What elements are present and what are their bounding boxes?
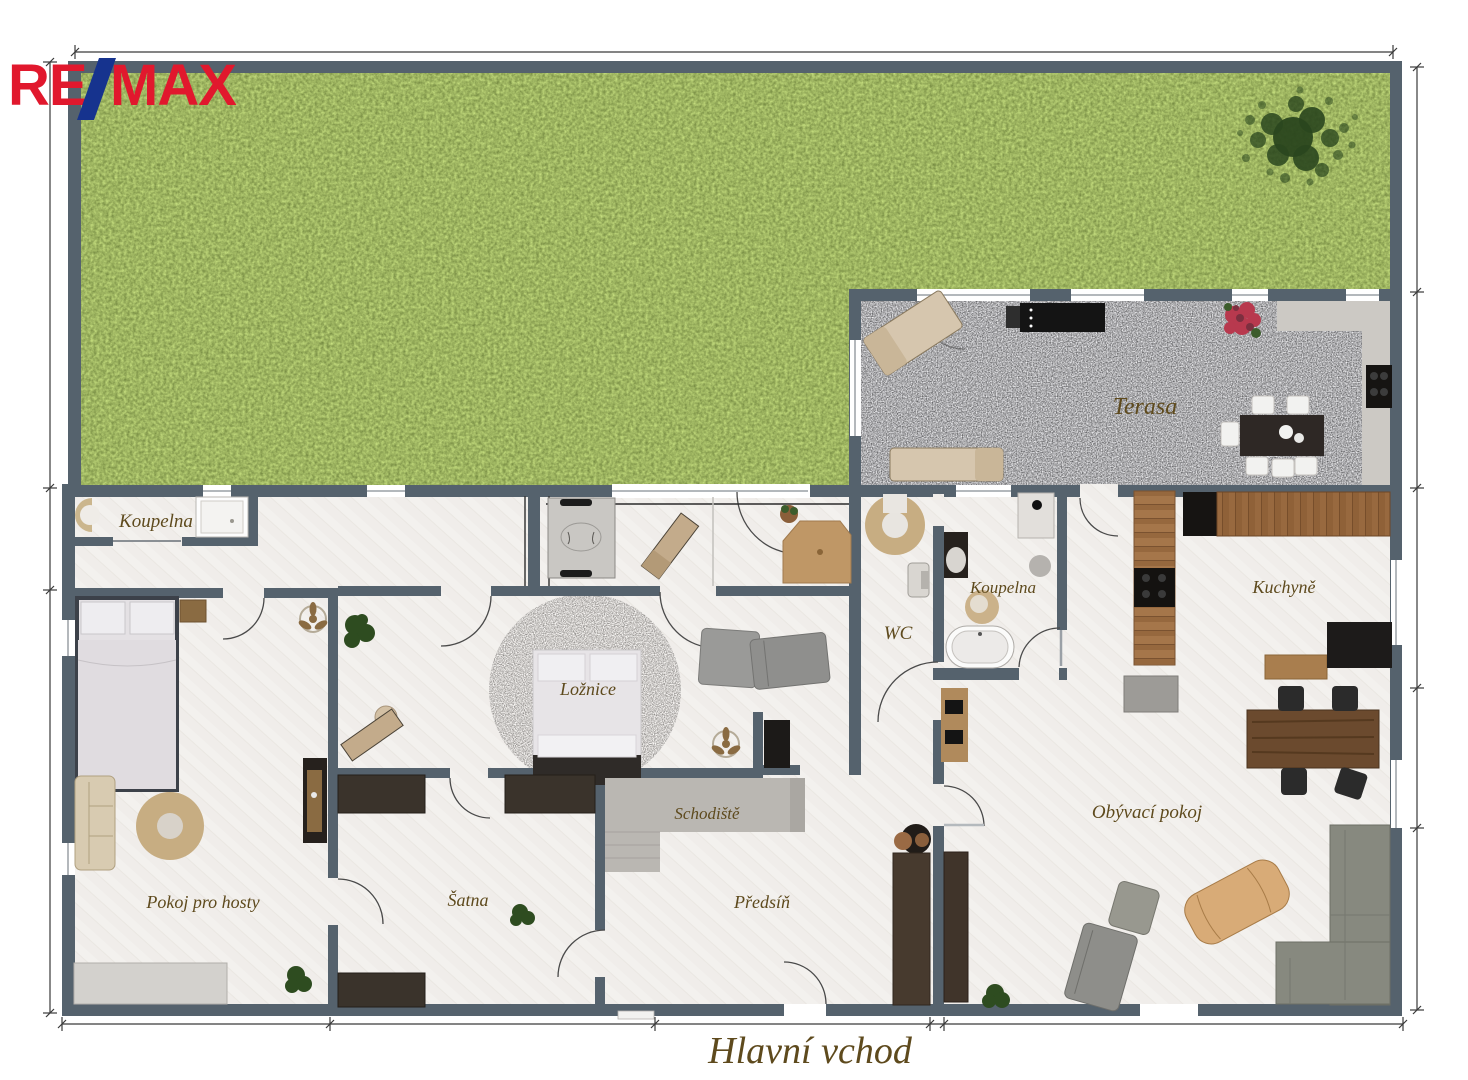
svg-text:WC: WC (884, 623, 913, 644)
svg-text:Koupelna: Koupelna (969, 578, 1036, 597)
svg-text:Hlavní vchod: Hlavní vchod (707, 1030, 913, 1072)
svg-text:Šatna: Šatna (447, 889, 488, 910)
svg-text:MAX: MAX (110, 53, 237, 118)
svg-text:Ložnice: Ložnice (559, 679, 616, 699)
svg-text:RE: RE (8, 53, 87, 118)
svg-text:Koupelna: Koupelna (118, 511, 193, 532)
svg-text:Obývací pokoj: Obývací pokoj (1092, 802, 1202, 823)
svg-text:Schodiště: Schodiště (674, 804, 740, 823)
svg-text:Kuchyně: Kuchyně (1252, 577, 1317, 597)
svg-text:Předsíň: Předsíň (733, 892, 790, 912)
svg-text:Terasa: Terasa (1113, 394, 1177, 420)
svg-text:Pokoj pro hosty: Pokoj pro hosty (145, 892, 259, 912)
